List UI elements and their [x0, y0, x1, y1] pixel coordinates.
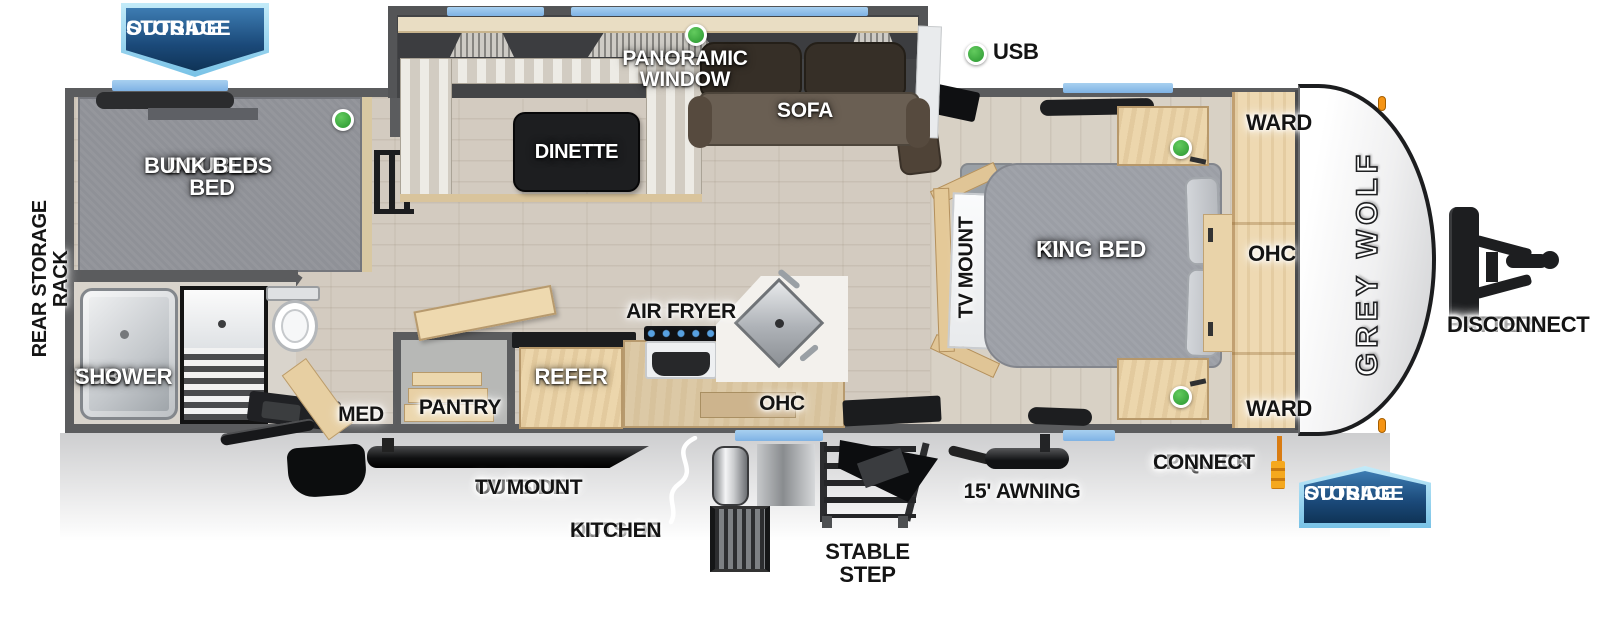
- sofa-back-right: [804, 42, 906, 96]
- pantry-step-1: [412, 372, 482, 386]
- hitch-arm-lower: [1474, 274, 1533, 300]
- window-bedroom-top: [1063, 83, 1173, 93]
- label-rear-storage-rack: REAR STORAGE RACK: [30, 184, 72, 374]
- step-foot-left: [822, 516, 832, 528]
- bedroom-bench-bottom: [1028, 407, 1093, 426]
- label-ohc-bedroom: OHC: [1237, 243, 1307, 266]
- slide-valance: [398, 17, 918, 33]
- outside-mini-fridge: [712, 446, 749, 506]
- label-air-fryer: AIR FRYER: [622, 301, 740, 323]
- stove-front: [652, 352, 710, 376]
- shower-door-knob: [218, 320, 226, 328]
- usb-dot-bunk: [332, 109, 354, 131]
- awning-rail-left: [367, 446, 649, 468]
- lp-connect-stem: [1277, 436, 1282, 462]
- usb-dot-panoramic: [685, 24, 707, 46]
- outside-storage-badge-top-face: OUTSIDESTORAGE: [126, 8, 264, 71]
- label-usb: USB: [993, 41, 1063, 64]
- step-foot-right: [898, 516, 908, 528]
- sofa-arm-right: [906, 98, 930, 148]
- awning-bracket: [382, 438, 394, 452]
- ohc-handle-1: [1208, 228, 1213, 242]
- outside-griddle: [710, 506, 770, 572]
- usb-dot-nightstand-top: [1170, 137, 1192, 159]
- stove-burner-strip: [644, 326, 718, 341]
- label-ward-bottom: WARD: [1239, 398, 1319, 421]
- awning-link: [1040, 434, 1050, 452]
- label-ohc-kitchen: OHC: [743, 393, 821, 415]
- sink-drain: [775, 319, 784, 328]
- outside-kitchen-panel: [757, 444, 815, 506]
- window-bottom-bedroom: [1063, 430, 1115, 441]
- refrigerator-top: [512, 332, 636, 348]
- dinette-bench-trim: [400, 194, 702, 202]
- brand-logo: GREY WOLF: [1351, 113, 1385, 413]
- toilet-tank: [266, 286, 320, 301]
- floorplan-canvas: PANORAMIC WINDOW SOFA DINETTE DOUBLE BED…: [0, 0, 1600, 630]
- label-ward-top: WARD: [1239, 112, 1319, 135]
- window-slide-left: [447, 7, 544, 16]
- toilet-bowl-inner: [281, 309, 309, 343]
- ohc-handle-2: [1208, 322, 1213, 336]
- usb-dot-legend: [965, 43, 987, 65]
- bunk-headboard-2: [148, 108, 258, 120]
- label-panoramic-window: PANORAMIC WINDOW: [587, 48, 783, 91]
- clearance-light-bottom: [1378, 418, 1386, 433]
- label-sofa: SOFA: [765, 100, 845, 121]
- bunk-wood-trim: [362, 97, 372, 272]
- outside-kitchen-cord: [655, 436, 705, 526]
- hitch-plate: [1449, 207, 1479, 327]
- label-med: MED: [330, 404, 392, 426]
- label-pantry: PANTRY: [410, 397, 510, 419]
- tub: [80, 288, 178, 420]
- usb-dot-nightstand-bottom: [1170, 386, 1192, 408]
- dinette-bench-left: [400, 58, 452, 196]
- wall-below-bunk: [70, 270, 298, 282]
- clearance-light-top: [1378, 96, 1386, 111]
- label-tv-mount: TV MOUNT: [957, 206, 978, 328]
- hitch-crossmember: [1486, 252, 1498, 282]
- label-awning: 15' AWNING: [952, 481, 1092, 503]
- window-bunk: [112, 80, 228, 91]
- entry-step-well: [842, 395, 941, 426]
- label-refer: REFER: [521, 366, 621, 388]
- nightstand-bottom: [1117, 358, 1209, 420]
- shower-door-glass: [184, 290, 264, 348]
- hitch-coupler-tip: [1541, 251, 1559, 269]
- lp-connect-fitting: [1271, 461, 1285, 489]
- window-bottom-kitchen: [735, 430, 823, 441]
- label-dinette: DINETTE: [513, 142, 640, 162]
- sofa-arm-left: [688, 96, 712, 148]
- label-stable-step: STABLE STEP: [795, 541, 940, 587]
- bunk-headboard: [96, 92, 234, 109]
- awning-roller: [985, 448, 1069, 469]
- window-slide-right: [571, 7, 868, 16]
- tub-drain: [120, 330, 129, 339]
